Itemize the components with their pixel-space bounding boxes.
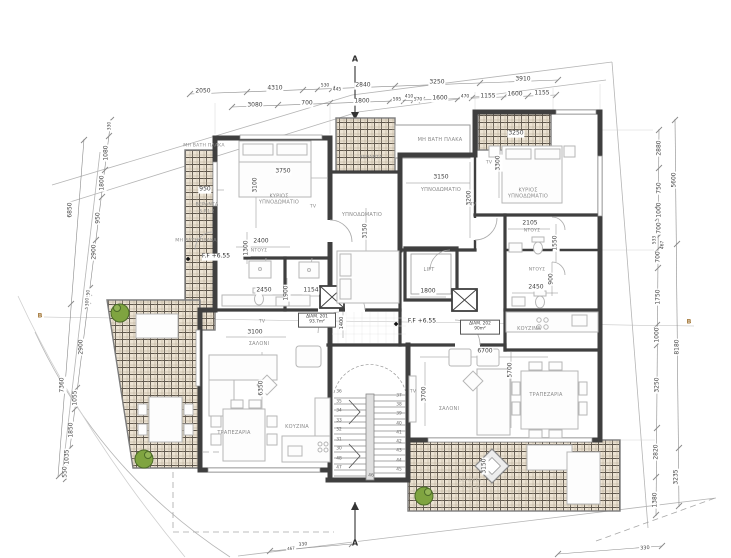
- stair-step-number: 40: [396, 423, 401, 428]
- section-marker-a-bottom: A: [352, 540, 358, 549]
- dim-label: 330: [298, 542, 309, 548]
- level-marker-icon: ◆: [394, 322, 399, 329]
- dim-label: 1154: [302, 288, 319, 295]
- dim-label: 4310: [266, 86, 283, 93]
- dim-label: 3700: [422, 385, 429, 402]
- dim-label: 3750: [274, 169, 291, 176]
- level-center: F.F +6.55: [408, 319, 436, 326]
- dim-label: 2900: [79, 338, 86, 355]
- dim-label: 1550: [553, 234, 560, 251]
- dim-label: 3300: [496, 154, 503, 171]
- dim-label: 1600: [506, 92, 523, 99]
- dim-label: 530: [320, 83, 331, 88]
- dim-label: 445: [332, 87, 343, 92]
- section-marker-b-right: B: [687, 318, 692, 325]
- dim-label: 467: [660, 240, 665, 251]
- label-kitchen-left: ΚΟΥΖΙΝΑ: [285, 425, 309, 431]
- stair-step-number: 32: [336, 429, 341, 434]
- dim-label: 750: [657, 181, 664, 194]
- dim-label: 700: [657, 221, 664, 234]
- label-living-right: ΣΑΛΟΝΙ: [439, 407, 459, 413]
- stair-step-number: 30: [336, 448, 341, 453]
- apartment-201-box: ΔΙΑΜ. 201 93.7m²: [298, 313, 336, 328]
- label-kitchen-right: ΚΟΥΖΙΝΑ: [517, 327, 541, 333]
- label-veranda-top: ΒΕΡΑΝΤΑ: [360, 155, 383, 160]
- label-veranda-left: ΒΕΡΑΝΤΑ: [196, 202, 219, 207]
- label-bedroom-mid-left: ΥΠΝΟΔΩΜΑΤΙΟ: [342, 213, 382, 219]
- label-slab-center: ΜΗ ΒΑΤΗ ΠΛΑΚΑ: [395, 138, 485, 144]
- floor-plan-canvas: ΔΙΑΜ. 201 93.7m² ΔΙΑΜ. 202 90m² ◆ F.F +6…: [0, 0, 731, 558]
- dim-label: 1000: [657, 201, 664, 218]
- label-tv-4: TV: [259, 319, 265, 324]
- label-master-bedroom-left: ΚΥΡΙΟΣ ΥΠΝΟΔΩΜΑΤΙΟ: [250, 194, 308, 205]
- dim-label: 570: [413, 97, 424, 102]
- dim-label: 470: [460, 94, 471, 99]
- stair-step-number: 44: [396, 460, 401, 465]
- stair-step-number: 43: [396, 450, 401, 455]
- dim-label: 950: [96, 211, 103, 224]
- dim-label: 5700: [508, 361, 515, 378]
- label-dining-left: ΤΡΑΠΕΖΑΡΙΑ: [217, 431, 250, 437]
- stair-step-number: 35: [336, 401, 341, 406]
- dim-label: 3910: [514, 77, 531, 84]
- label-living-left: ΣΑΛΟΝΙ: [249, 342, 269, 348]
- dim-label: 950: [198, 187, 211, 194]
- label-tv-1: TV: [310, 204, 316, 209]
- stair-step-number: 37: [396, 395, 401, 400]
- dim-label: 3100: [253, 176, 260, 193]
- dim-label: 3150: [363, 222, 370, 239]
- label-shower-left: ΝΤΟΥΣ: [251, 248, 268, 253]
- stair-step-number: 34: [336, 410, 341, 415]
- level-left: F.F +6.55: [202, 254, 230, 261]
- stair-step-number: 42: [396, 441, 401, 446]
- dim-label: 1900: [284, 284, 291, 301]
- dim-label: 550: [63, 465, 70, 478]
- dim-label: 3250: [428, 80, 445, 87]
- dim-label: 6700: [476, 349, 493, 356]
- dim-label: 2900: [92, 243, 99, 260]
- dim-label: 1750: [656, 288, 663, 305]
- section-marker-b-left: B: [38, 312, 43, 319]
- label-shower-right-top: ΝΤΟΥΣ: [524, 228, 541, 233]
- stair-step-number: 45: [396, 469, 401, 474]
- label-tv-5: TV: [410, 389, 416, 394]
- stair-step-number: 47: [336, 467, 341, 472]
- dim-label: 5600: [672, 171, 679, 188]
- dim-label: 3250: [507, 131, 524, 138]
- stair-step-number: 36: [336, 391, 341, 396]
- dim-label: 2400: [252, 239, 269, 246]
- label-veranda-bottom-right: ΒΕΡΑΝΤΑ: [459, 478, 482, 483]
- dim-label: 330: [639, 546, 651, 552]
- dim-label: 2880: [657, 139, 664, 156]
- dim-label: 3150: [432, 175, 449, 182]
- dim-label: 2820: [654, 443, 661, 460]
- dim-label: 900: [549, 272, 556, 285]
- dim-label: 3150: [482, 457, 489, 474]
- dim-label: 330: [107, 121, 112, 132]
- dim-label: 2105: [521, 221, 538, 228]
- apartment-202-box: ΔΙΑΜ. 202 90m²: [460, 320, 500, 335]
- label-veranda-bottom-right-level: F.F +6.50: [459, 486, 480, 491]
- dim-label: 1055: [73, 389, 80, 406]
- dim-label: 1300: [244, 239, 251, 256]
- dim-label: 1035: [65, 448, 72, 465]
- apartment-202-area: 90m²: [463, 327, 497, 332]
- dim-label: 1600: [431, 96, 448, 103]
- label-shower-right-mid: ΝΤΟΥΣ: [529, 267, 546, 272]
- level-marker-icon: ◆: [186, 257, 191, 264]
- stair-step-number: 33: [336, 420, 341, 425]
- stair-step-number: 48: [336, 458, 341, 463]
- dim-label: 1080: [104, 144, 111, 161]
- stair-step-number: 41: [396, 432, 401, 437]
- dim-label: 1800: [419, 289, 436, 296]
- dim-label: 6350: [259, 379, 266, 396]
- dim-label: 700: [300, 101, 313, 108]
- stair-step-number: 31: [336, 439, 341, 444]
- dim-label: 595: [392, 97, 403, 102]
- dim-label: 8180: [675, 338, 682, 355]
- stairs: [334, 365, 406, 480]
- dim-label: 2840: [354, 83, 371, 90]
- dim-label: 1800: [353, 99, 370, 106]
- label-veranda-left-area: S.P.1.2: [199, 210, 214, 215]
- dim-label: 3250: [655, 376, 662, 393]
- stair-step-number: 39: [396, 413, 401, 418]
- dim-label: 1000: [655, 326, 662, 343]
- stair-step-number: 46: [368, 475, 373, 480]
- label-slab-top-left: ΜΗ ΒΑΤΗ ΠΛΑΚΑ: [183, 143, 225, 148]
- label-bedroom-center: ΥΠΝΟΔΩΜΑΤΙΟ: [421, 188, 461, 194]
- dim-label: 1155: [479, 94, 496, 101]
- label-master-bedroom-right: ΚΥΡΙΟΣ ΥΠΝΟΔΩΜΑΤΙΟ: [499, 188, 557, 199]
- dim-label: 533: [652, 235, 657, 246]
- dim-label: 1400: [340, 316, 346, 331]
- dim-label: 300: [85, 297, 90, 308]
- dim-label: 3100: [246, 330, 263, 337]
- section-marker-a-top: A: [352, 56, 358, 65]
- dim-label: 1800: [100, 174, 107, 191]
- dim-label: 2450: [527, 285, 544, 292]
- dim-label: 3235: [674, 468, 681, 485]
- dim-label: 2050: [194, 89, 211, 96]
- label-lift: LIFT: [424, 268, 435, 274]
- dim-label: 1380: [653, 491, 660, 508]
- label-tv-2: TV: [486, 160, 492, 165]
- apartment-201-area: 93.7m²: [301, 320, 333, 325]
- stair-step-number: 38: [396, 404, 401, 409]
- label-slab-mid-left: ΜΗ ΒΑΤΗ ΠΛΑΚΑ: [175, 238, 217, 243]
- dim-label: 700: [656, 250, 663, 263]
- dim-label: 2450: [255, 288, 272, 295]
- dim-label: 3080: [246, 103, 263, 110]
- dim-label: 6850: [68, 201, 75, 218]
- dim-label: 467: [286, 546, 296, 551]
- label-tv-3: TV: [470, 202, 476, 207]
- dim-label: 1850: [69, 421, 76, 438]
- label-dining-right: ΤΡΑΠΕΖΑΡΙΑ: [529, 393, 562, 399]
- dim-label: 1155: [533, 91, 550, 98]
- dim-label: 7360: [60, 376, 67, 393]
